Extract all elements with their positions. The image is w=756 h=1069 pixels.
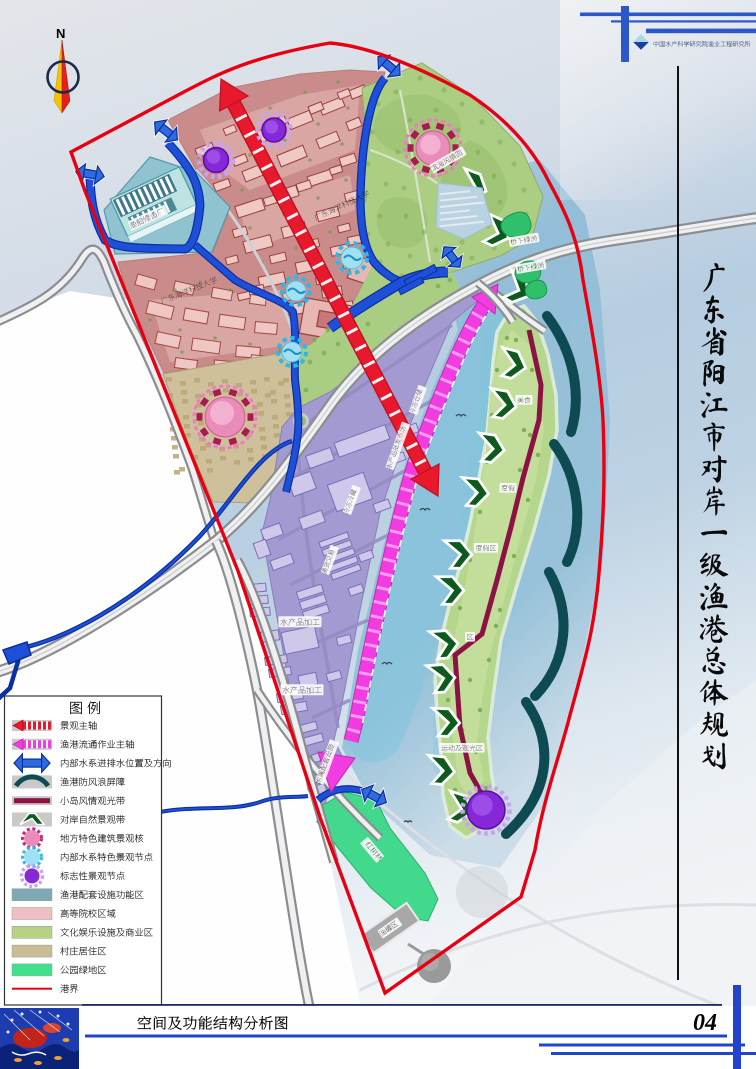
svg-text:04: 04 <box>693 1010 717 1036</box>
svg-text:N: N <box>56 26 65 41</box>
